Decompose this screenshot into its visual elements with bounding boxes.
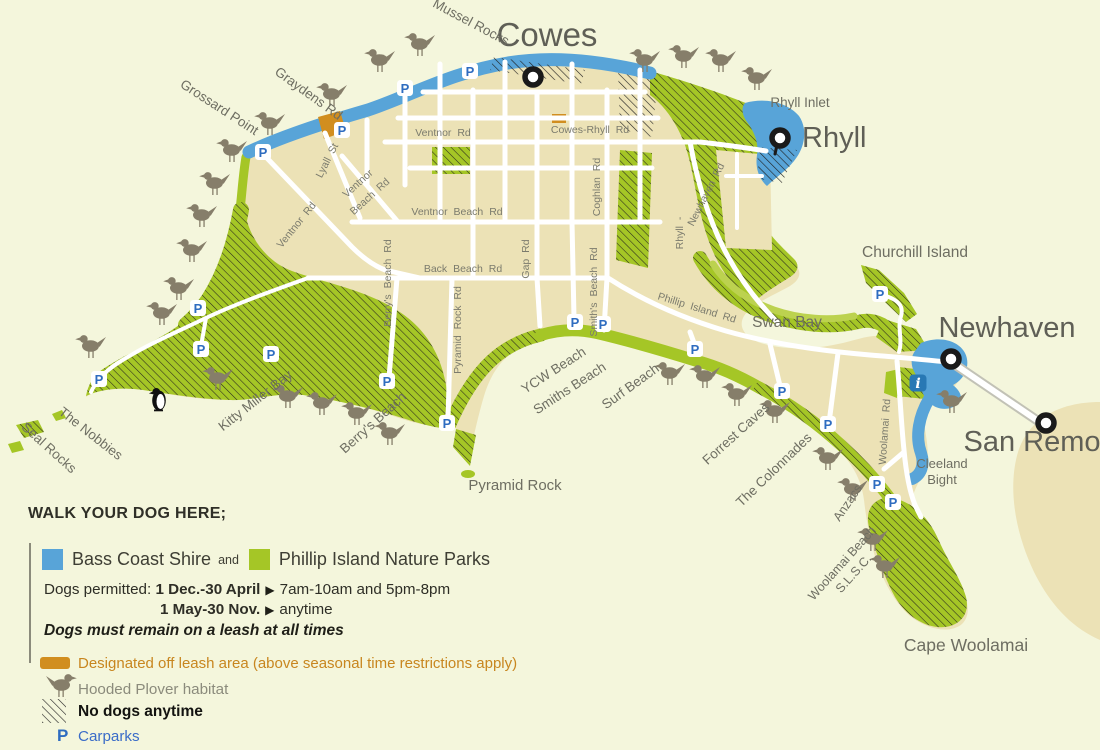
carpark-p-glyph: P [267, 347, 276, 362]
place-label-pyramid-rock: Pyramid Rock [468, 477, 562, 494]
carpark-marker: P [91, 371, 107, 387]
carpark-p-glyph: P [259, 145, 268, 160]
road-label-smith-s-beach-rd: Smith's Beach Rd [588, 247, 600, 336]
carpark-p-glyph: P [691, 342, 700, 357]
road-label-cowes-rhyll-rd: Cowes-Rhyll Rd [551, 124, 629, 136]
town-label-san-remo: San Remo [963, 426, 1100, 458]
carpark-marker: P [255, 144, 271, 160]
carpark-marker: P [379, 373, 395, 389]
carpark-marker: P [872, 286, 888, 302]
phillip-island-dog-walking-map: PPPPPPPPPPPPPPPPPPi CowesRhyllNewhavenSa… [0, 0, 1100, 750]
carpark-marker: P [885, 494, 901, 510]
carpark-marker: P [869, 476, 885, 492]
info-i-glyph: i [915, 376, 920, 392]
carpark-marker: P [193, 341, 209, 357]
carpark-marker: P [439, 415, 455, 431]
carpark-marker: P [263, 346, 279, 362]
place-label-swan-bay: Swan Bay [752, 314, 822, 331]
carpark-p-glyph: P [778, 384, 787, 399]
carpark-marker: P [462, 63, 478, 79]
road-label-ventnor-beach-rd: Ventnor Beach Rd [411, 206, 502, 218]
carpark-marker: P [774, 383, 790, 399]
place-label-churchill-island: Churchill Island [862, 244, 968, 261]
town-marker-cowes [525, 69, 541, 85]
carpark-p-glyph: P [571, 315, 580, 330]
carpark-marker: P [567, 314, 583, 330]
carpark-p-glyph: P [197, 342, 206, 357]
carpark-p-glyph: P [466, 64, 475, 79]
carpark-marker: P [397, 80, 413, 96]
town-label-rhyll: Rhyll [802, 122, 866, 154]
carpark-p-glyph: P [194, 301, 203, 316]
carpark-p-glyph: P [338, 123, 347, 138]
road-label-rhyll-: Rhyll - [674, 216, 686, 249]
place-label-rhyll-inlet: Rhyll Inlet [770, 95, 830, 110]
carpark-p-glyph: P [876, 287, 885, 302]
carpark-p-glyph: P [873, 477, 882, 492]
carpark-p-glyph: P [401, 81, 410, 96]
carpark-p-glyph: P [824, 417, 833, 432]
town-marker-newhaven [943, 351, 959, 367]
carpark-marker: P [820, 416, 836, 432]
road-label-back-beach-rd: Back Beach Rd [424, 263, 503, 275]
carpark-p-glyph: P [599, 317, 608, 332]
carpark-p-glyph: P [383, 374, 392, 389]
carpark-p-glyph: P [443, 416, 452, 431]
town-label-newhaven: Newhaven [938, 312, 1075, 344]
road-label-gap-rd: Gap Rd [520, 239, 532, 278]
carpark-p-glyph: P [95, 372, 104, 387]
carpark-p-glyph: P [889, 495, 898, 510]
information-marker: i [910, 375, 927, 393]
road-label-pyramid-rock-rd: Pyramid Rock Rd [452, 286, 464, 374]
place-label-cape-woolamai: Cape Woolamai [904, 635, 1028, 655]
road-label-coghlan-rd: Coghlan Rd [591, 158, 603, 217]
carpark-marker: P [687, 341, 703, 357]
road-label-ventnor-rd: Ventnor Rd [415, 127, 471, 139]
road-label-berry-s-beach-rd: Berry's Beach Rd [382, 239, 394, 327]
carpark-marker: P [190, 300, 206, 316]
carpark-marker: P [334, 122, 350, 138]
